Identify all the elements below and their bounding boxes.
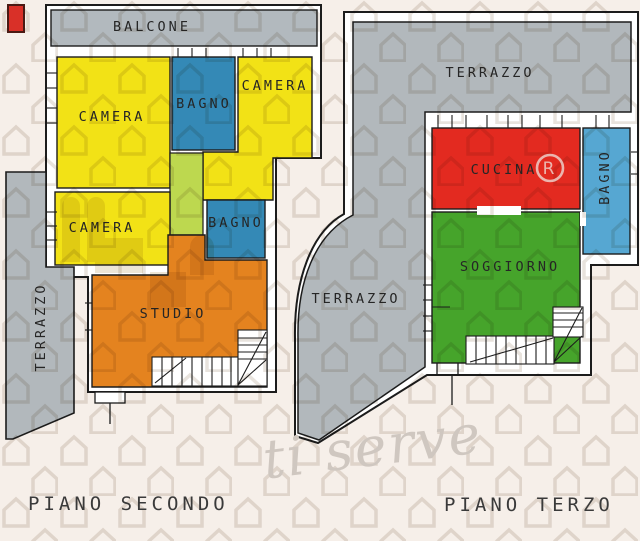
red-corner-mark [7, 4, 25, 33]
svg-text:R: R [543, 159, 558, 179]
third-floor-caption: PIANO TERZO [444, 494, 614, 516]
house-pattern-watermark [0, 0, 640, 541]
second-floor-caption: PIANO SECONDO [28, 493, 229, 515]
floor-plan-sheet: BALCONE CAMERA BAGNO CAMERA CAMERA BAGNO… [0, 0, 640, 541]
floor-plan-drawing: BALCONE CAMERA BAGNO CAMERA CAMERA BAGNO… [0, 0, 640, 541]
